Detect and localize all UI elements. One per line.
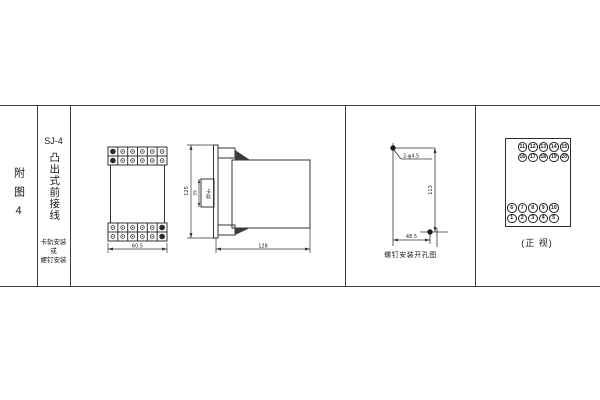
terminal-9: 9	[539, 203, 549, 213]
column-divider-4	[475, 105, 476, 286]
column-divider-3	[345, 105, 346, 286]
terminal-8: 8	[528, 203, 538, 213]
model-label: SJ-4	[37, 136, 70, 146]
terminal-17: 17	[528, 153, 538, 163]
drill-hole-top	[390, 145, 395, 150]
front-view-width-dim: 60.5	[132, 243, 143, 249]
figure-row-label: 附图4	[0, 105, 37, 286]
terminal-panel-caption: (正 视)	[500, 236, 574, 249]
side-view-height-dim: 125	[184, 186, 190, 196]
terminal-20: 20	[560, 153, 570, 163]
terminal-group-bottom: 6 7 8 9 10 1 2 3 4 5	[507, 203, 559, 223]
front-view-drawing: 60.5	[95, 135, 180, 260]
drill-hole-bottom	[427, 229, 432, 234]
mount-note-line3: 螺钉安装	[36, 257, 71, 265]
terminal-16: 16	[518, 153, 528, 163]
figure-sheet: 附图4 SJ-4 凸出式前接线 卡轨安装 或 螺钉安装	[0, 0, 600, 400]
terminal-3: 3	[528, 214, 538, 224]
drill-diagram-caption: 螺钉安装开孔图	[368, 250, 453, 260]
terminal-7: 7	[518, 203, 528, 213]
table-border-top	[0, 105, 600, 106]
terminal-1: 1	[507, 214, 517, 224]
terminal-14: 14	[549, 142, 559, 152]
table-border-bottom	[0, 286, 600, 287]
side-view-depth-dim: 128	[258, 243, 268, 249]
terminal-10: 10	[549, 203, 559, 213]
terminal-11: 11	[518, 142, 528, 152]
front-view-outline	[108, 147, 167, 241]
drill-horizontal-dim: 48.5	[406, 234, 417, 240]
drill-vertical-dim: 113	[428, 185, 434, 195]
terminal-5: 5	[549, 214, 559, 224]
terminal-12: 12	[528, 142, 538, 152]
terminal-18: 18	[539, 153, 549, 163]
side-view-drawing: 125 35 128	[180, 135, 320, 260]
terminal-group-top: 11 12 13 14 15 16 17 18 19 20	[518, 142, 570, 162]
type-label: 凸出式前接线	[48, 152, 60, 221]
drill-lines	[393, 143, 448, 247]
mount-note-line1: 卡轨安装	[36, 239, 71, 247]
terminal-13: 13	[539, 142, 549, 152]
drill-holes-label: 2-φ4.5	[403, 154, 419, 160]
terminal-6: 6	[507, 203, 517, 213]
mount-note-line2: 或	[36, 248, 71, 256]
side-view-outline	[201, 145, 310, 238]
terminal-15: 15	[560, 142, 570, 152]
side-view-wedges	[235, 150, 250, 235]
terminal-2: 2	[518, 214, 528, 224]
terminal-19: 19	[549, 153, 559, 163]
terminal-4: 4	[539, 214, 549, 224]
terminal-panel: 11 12 13 14 15 16 17 18 19 20 6 7 8 9 10	[505, 138, 571, 227]
rail-slot-label: 卡轨	[203, 181, 213, 206]
side-view-rail-dim: 35	[193, 190, 199, 196]
drill-diagram: 2-φ4.5 113 48.5	[370, 135, 470, 260]
